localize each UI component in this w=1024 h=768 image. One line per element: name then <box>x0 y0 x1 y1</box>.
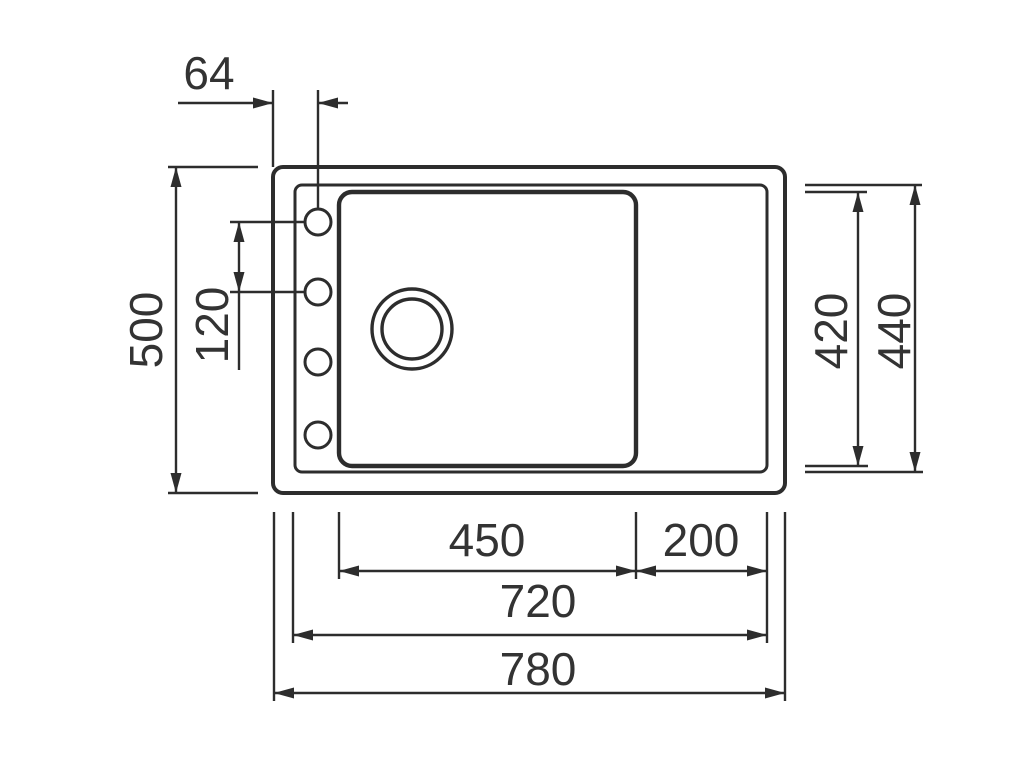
arrowhead-up-icon <box>171 167 182 187</box>
tap-hole-3 <box>305 349 331 375</box>
dim-label-bowl-depth: 420 <box>805 293 857 370</box>
dim-right-ledge-width: 200 <box>636 514 767 576</box>
arrowhead-down-icon <box>853 446 864 466</box>
dim-tap-hole-spacing: 120 <box>186 222 306 370</box>
drawing-canvas: 64 500 120 420 <box>0 0 1024 768</box>
arrowhead-left-icon <box>293 630 313 641</box>
arrowhead-left-icon <box>318 98 338 109</box>
drain-inner-circle <box>382 299 442 359</box>
dim-inner-width: 720 <box>293 575 767 640</box>
arrowhead-down-icon <box>910 452 921 472</box>
dim-label-inner-width: 720 <box>500 575 577 627</box>
dim-overall-width: 780 <box>274 643 785 698</box>
dim-label-tap-hole-offset: 64 <box>183 47 234 99</box>
arrowhead-up-icon <box>853 192 864 212</box>
tap-hole-2 <box>305 279 331 305</box>
arrowhead-up-icon <box>234 222 245 242</box>
arrowhead-right-icon <box>765 688 785 699</box>
tap-hole-4 <box>305 422 331 448</box>
arrowhead-left-icon <box>339 566 359 577</box>
dim-label-bowl-width: 450 <box>449 514 526 566</box>
arrowhead-up-icon <box>910 185 921 205</box>
drain-outer-circle <box>372 289 452 369</box>
arrowhead-right-icon <box>616 566 636 577</box>
arrowhead-right-icon <box>253 98 273 109</box>
dim-bowl-depth: 420 <box>805 192 868 466</box>
dim-label-inner-depth: 440 <box>868 293 920 370</box>
sink-inner-rim <box>295 185 767 472</box>
sink-outer-edge <box>273 167 785 493</box>
arrowhead-right-icon <box>747 566 767 577</box>
dim-label-right-ledge-width: 200 <box>663 514 740 566</box>
sink-plan-view <box>273 167 785 493</box>
dim-label-overall-depth: 500 <box>120 292 172 369</box>
dim-label-tap-hole-spacing: 120 <box>186 287 238 364</box>
sink-technical-drawing: 64 500 120 420 <box>0 0 1024 768</box>
arrowhead-right-icon <box>747 630 767 641</box>
dim-label-overall-width: 780 <box>500 643 577 695</box>
tap-hole-1 <box>305 209 331 235</box>
arrowhead-left-icon <box>274 688 294 699</box>
dim-bowl-width: 450 <box>339 514 636 576</box>
arrowhead-left-icon <box>636 566 656 577</box>
arrowhead-down-icon <box>171 473 182 493</box>
